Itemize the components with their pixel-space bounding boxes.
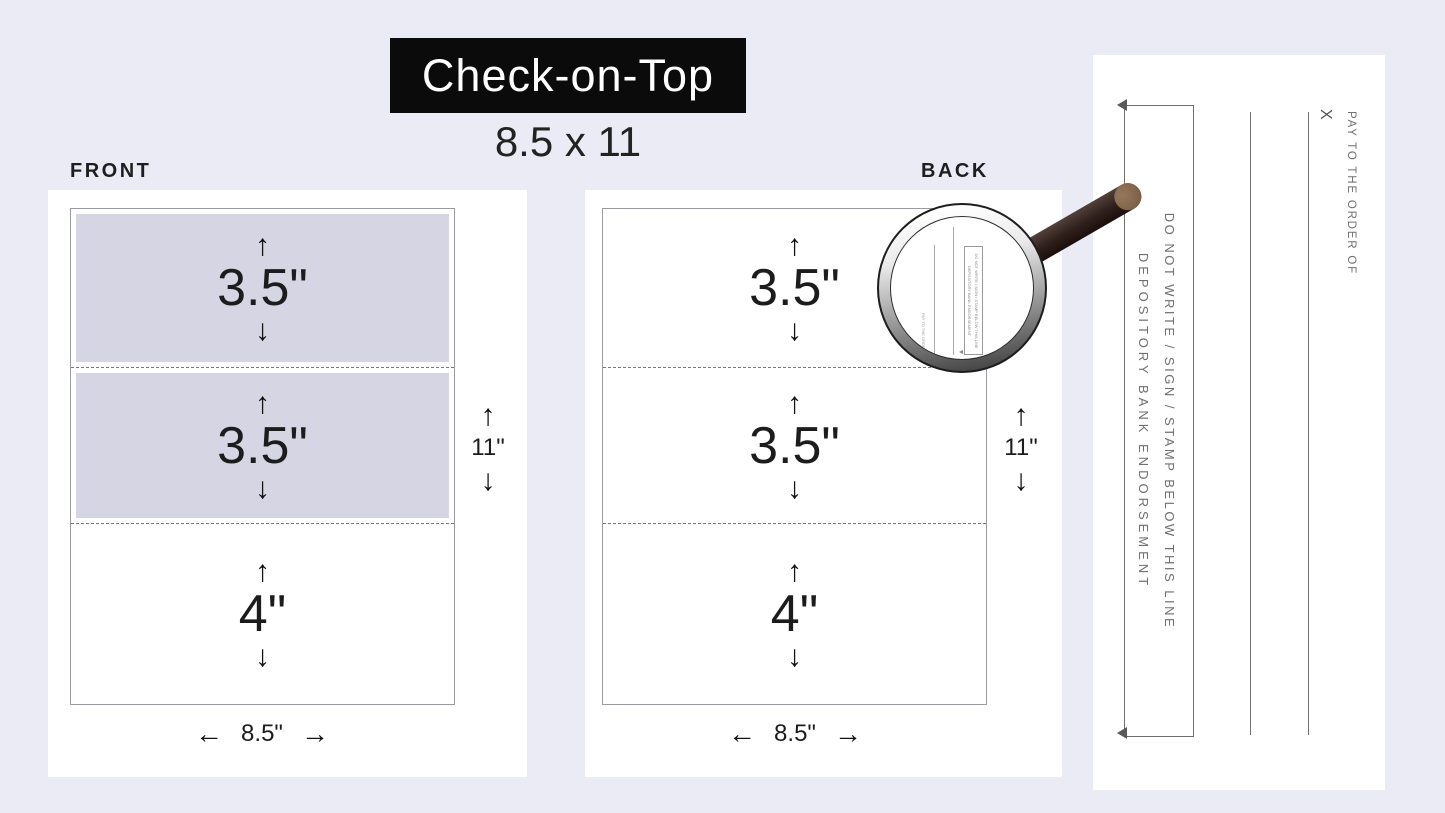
right-arrow-icon: → [301, 720, 329, 748]
left-arrow-icon: ← [195, 720, 223, 748]
down-arrow-icon: ↓ [255, 317, 270, 344]
back-section-3: ↑ 4" ↓ [603, 524, 986, 704]
front-section-1: ↑ 3.5" ↓ [71, 209, 454, 368]
front-section-3: ↑ 4" ↓ [71, 524, 454, 704]
down-arrow-icon: ↓ [255, 475, 270, 502]
down-arrow-icon: ↓ [787, 475, 802, 502]
endorsement-rule-line [1250, 112, 1251, 735]
left-arrow-icon [1117, 99, 1127, 111]
down-arrow-icon: ↓ [1014, 467, 1029, 494]
front-card: ↑ 3.5" ↓ ↑ 3.5" ↓ ↑ 4" ↓ ↑ 11" ↓ ← 8.5" … [48, 190, 527, 777]
up-arrow-icon: ↑ [787, 232, 802, 259]
left-arrow-icon [1117, 727, 1127, 739]
down-arrow-icon: ↓ [787, 643, 802, 670]
down-arrow-icon: ↓ [255, 643, 270, 670]
back-width-label: 8.5" [774, 722, 816, 746]
back-section-2-height-label: 3.5" [749, 420, 840, 472]
mini-left-arrow-icon [959, 350, 963, 354]
front-page-outline: ↑ 3.5" ↓ ↑ 3.5" ↓ ↑ 4" ↓ [70, 208, 455, 705]
front-section-2-height-label: 3.5" [217, 420, 308, 472]
front-section-1-height-label: 3.5" [217, 262, 308, 314]
sheet-size-label: 8.5 x 11 [390, 118, 746, 166]
front-width-label: 8.5" [241, 722, 283, 746]
up-arrow-icon: ↑ [787, 390, 802, 417]
up-arrow-icon: ↑ [481, 402, 496, 429]
up-arrow-icon: ↑ [787, 558, 802, 585]
back-width-dimension: ← 8.5" → [705, 720, 885, 748]
endorsement-line-1: DO NOT WRITE / SIGN / STAMP BELOW THIS L… [1162, 213, 1177, 629]
up-arrow-icon: ↑ [255, 232, 270, 259]
back-panel-label: BACK [921, 160, 989, 183]
endorsement-line-2: DEPOSITORY BANK ENDORSEMENT [1136, 253, 1151, 589]
check-back-detail-card: DO NOT WRITE / SIGN / STAMP BELOW THIS L… [1093, 55, 1385, 790]
mini-rule-line [934, 245, 935, 355]
back-height-label: 11" [1004, 436, 1037, 460]
up-arrow-icon: ↑ [255, 390, 270, 417]
signature-x-mark: X [1316, 109, 1334, 120]
front-width-dimension: ← 8.5" → [182, 720, 342, 748]
mini-endorsement-line-1: DO NOT WRITE / SIGN / STAMP BELOW THIS L… [974, 253, 979, 348]
back-section-1-height-label: 3.5" [749, 262, 840, 314]
up-arrow-icon: ↑ [1014, 402, 1029, 429]
left-arrow-icon: ← [728, 720, 756, 748]
back-height-dimension: ↑ 11" ↓ [995, 402, 1047, 494]
front-section-3-height-label: 4" [239, 588, 286, 640]
down-arrow-icon: ↓ [481, 467, 496, 494]
endorsement-rule-line [1308, 112, 1309, 735]
mini-endorsement-line-2: DEPOSITORY BANK ENDORSEMENT [967, 265, 972, 335]
back-section-2: ↑ 3.5" ↓ [603, 368, 986, 524]
title-banner: Check-on-Top [390, 38, 746, 113]
right-arrow-icon: → [834, 720, 862, 748]
up-arrow-icon: ↑ [255, 558, 270, 585]
front-height-dimension: ↑ 11" ↓ [462, 402, 514, 494]
front-section-2: ↑ 3.5" ↓ [71, 368, 454, 524]
back-section-3-height-label: 4" [771, 588, 818, 640]
title-text: Check-on-Top [422, 50, 714, 102]
front-panel-label: FRONT [70, 160, 151, 183]
pay-to-the-order-of-label: PAY TO THE ORDER OF [1345, 111, 1357, 275]
front-height-label: 11" [471, 436, 504, 460]
magnifier-lens: PAY TO THE ORDER OF DO NOT WRITE / SIGN … [890, 216, 1034, 360]
mini-endorsement-box: DO NOT WRITE / SIGN / STAMP BELOW THIS L… [964, 246, 983, 355]
check-on-top-diagram: Check-on-Top 8.5 x 11 FRONT BACK ↑ 3.5" … [0, 0, 1445, 813]
mini-rule-line [953, 227, 954, 355]
mini-pay-to-label: PAY TO THE ORDER OF [921, 313, 926, 358]
down-arrow-icon: ↓ [787, 317, 802, 344]
